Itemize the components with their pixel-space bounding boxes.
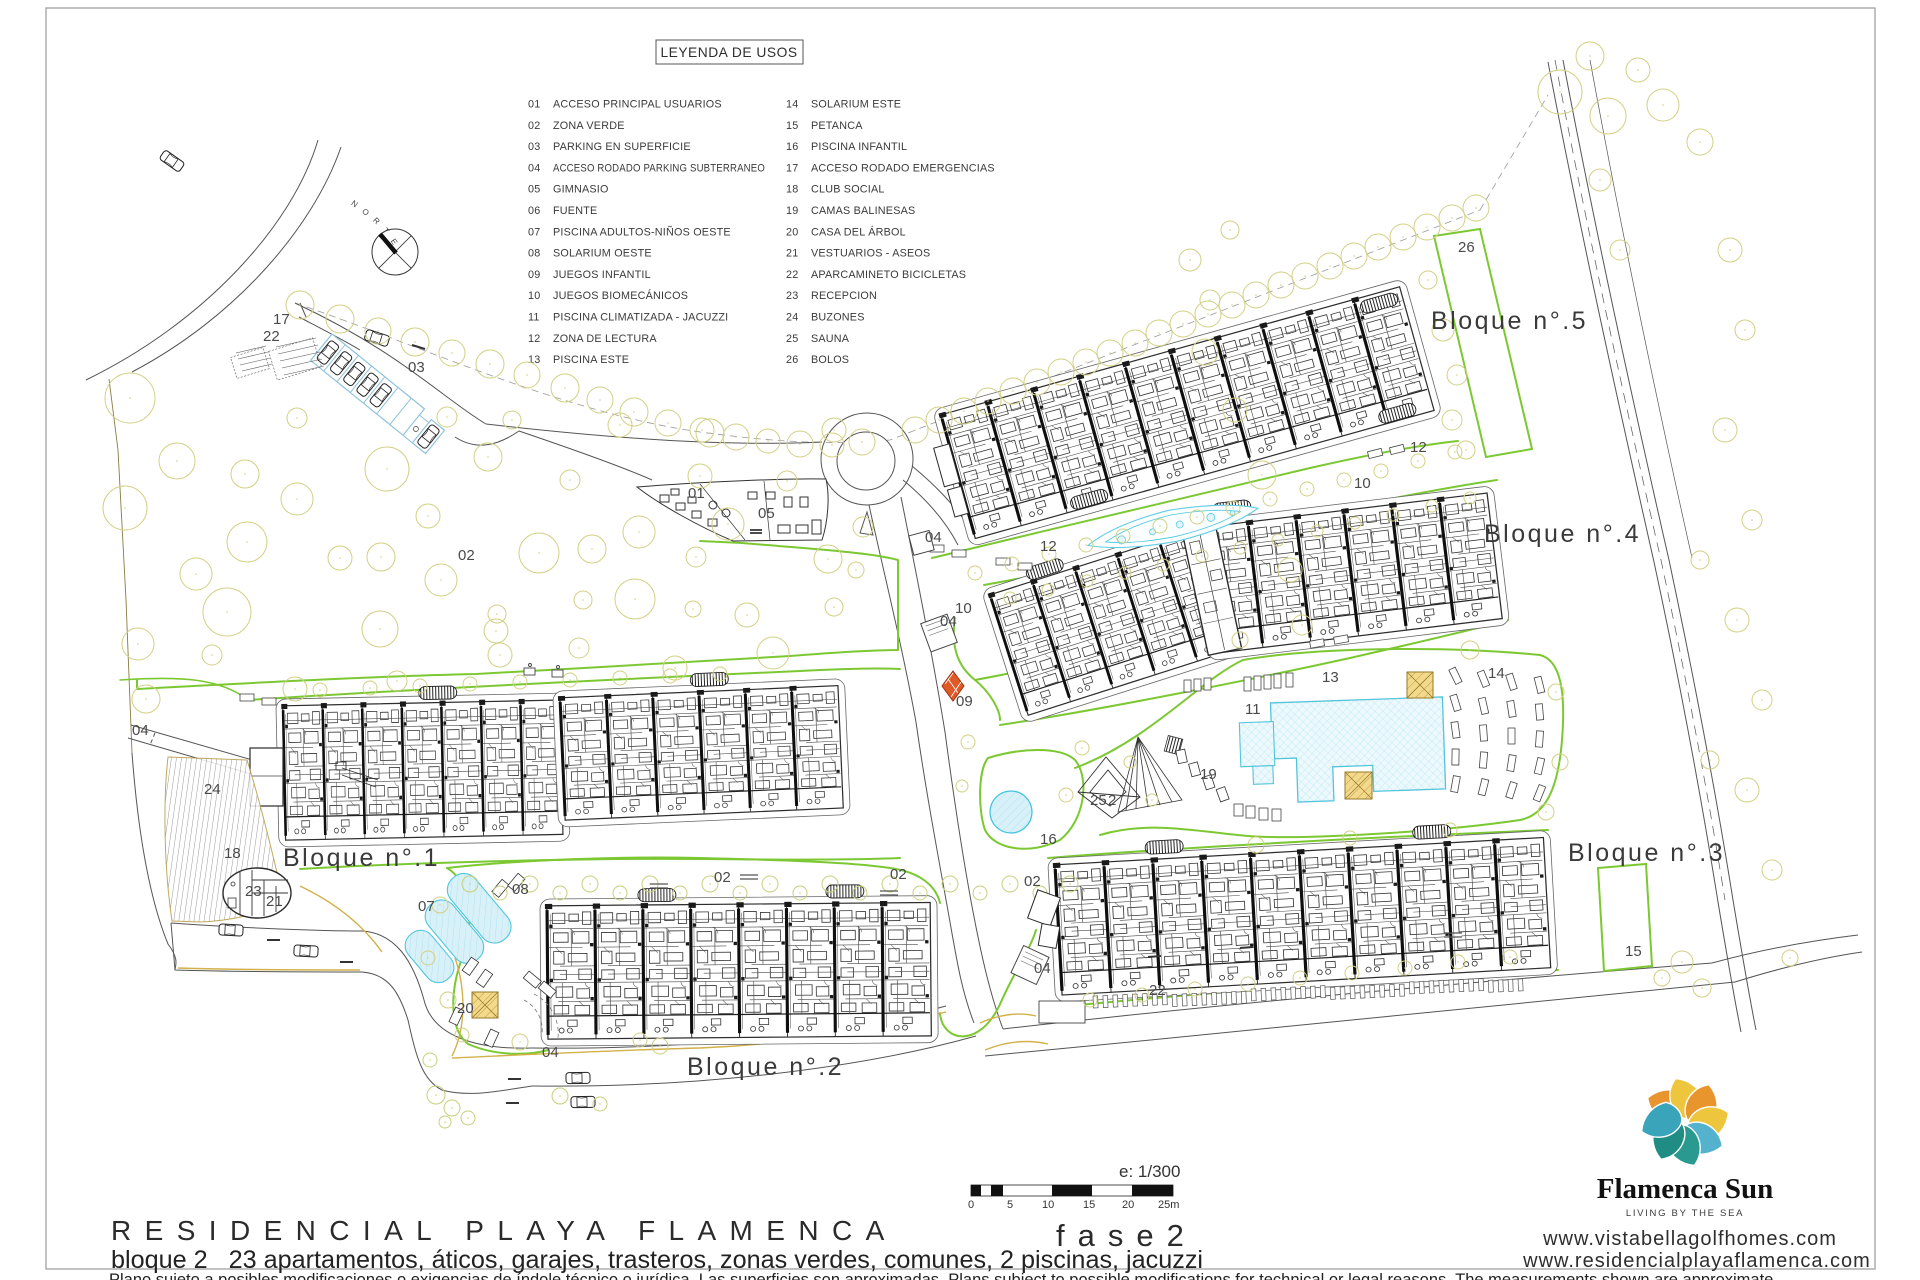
svg-text:GIMNASIO: GIMNASIO [553, 184, 609, 196]
svg-text:PISCINA INFANTIL: PISCINA INFANTIL [811, 141, 907, 153]
svg-text:22: 22 [263, 328, 280, 345]
svg-text:ZONA VERDE: ZONA VERDE [553, 120, 625, 132]
svg-text:CASA DEL ÁRBOL: CASA DEL ÁRBOL [811, 225, 906, 238]
svg-text:04: 04 [542, 1044, 559, 1061]
svg-text:ZONA DE LECTURA: ZONA DE LECTURA [553, 333, 657, 345]
svg-text:24: 24 [204, 781, 221, 798]
svg-text:08: 08 [528, 248, 540, 260]
svg-text:15: 15 [1083, 1199, 1095, 1211]
svg-text:11: 11 [1245, 701, 1261, 718]
svg-text:JUEGOS INFANTIL: JUEGOS INFANTIL [553, 269, 651, 281]
svg-text:02: 02 [1024, 873, 1041, 890]
svg-text:13: 13 [1322, 669, 1339, 686]
svg-text:19: 19 [1200, 766, 1217, 783]
svg-text:5: 5 [1007, 1199, 1013, 1211]
svg-text:Bloque n°.5: Bloque n°.5 [1431, 307, 1588, 335]
svg-text:09: 09 [528, 269, 540, 281]
svg-text:16: 16 [786, 141, 798, 153]
svg-text:14: 14 [786, 99, 798, 111]
svg-text:PISCINA CLIMATIZADA - JACUZZI: PISCINA CLIMATIZADA - JACUZZI [553, 312, 728, 324]
svg-text:26: 26 [1458, 239, 1475, 256]
svg-text:22: 22 [1149, 982, 1166, 999]
svg-text:20: 20 [1122, 1199, 1134, 1211]
svg-text:02: 02 [458, 547, 475, 564]
svg-text:SOLARIUM ESTE: SOLARIUM ESTE [811, 99, 901, 111]
svg-text:www.residencialplayaflamenca.c: www.residencialplayaflamenca.com [1522, 1250, 1871, 1272]
svg-text:0: 0 [968, 1199, 974, 1211]
svg-text:14: 14 [1488, 665, 1505, 682]
svg-text:05: 05 [528, 184, 540, 196]
svg-text:JUEGOS BIOMECÁNICOS: JUEGOS BIOMECÁNICOS [553, 289, 688, 302]
svg-text:Plano sujeto a posibles modifi: Plano sujeto a posibles modificaciones o… [109, 1271, 1773, 1280]
svg-text:22: 22 [786, 269, 798, 281]
svg-text:BUZONES: BUZONES [811, 312, 865, 324]
svg-text:01: 01 [528, 99, 540, 111]
svg-text:16: 16 [1040, 831, 1057, 848]
svg-text:18: 18 [786, 184, 798, 196]
svg-text:2: 2 [1108, 792, 1116, 809]
svg-text:12: 12 [528, 333, 540, 345]
svg-text:21: 21 [786, 248, 798, 260]
svg-text:10: 10 [955, 600, 972, 617]
svg-text:02: 02 [528, 120, 540, 132]
svg-text:Bloque n°.4: Bloque n°.4 [1484, 520, 1641, 548]
svg-text:www.vistabellagolfhomes.com: www.vistabellagolfhomes.com [1542, 1228, 1837, 1250]
svg-text:25m: 25m [1158, 1199, 1179, 1211]
svg-text:04: 04 [528, 162, 540, 174]
svg-text:26: 26 [786, 354, 798, 366]
svg-text:SAUNA: SAUNA [811, 333, 850, 345]
svg-text:10: 10 [1042, 1199, 1054, 1211]
svg-text:25: 25 [1090, 792, 1107, 809]
svg-text:10: 10 [528, 290, 540, 302]
svg-text:PISCINA ESTE: PISCINA ESTE [553, 354, 629, 366]
svg-text:03: 03 [408, 359, 425, 376]
svg-text:CAMAS BALINESAS: CAMAS BALINESAS [811, 205, 915, 217]
svg-text:04: 04 [1034, 960, 1051, 977]
svg-text:07: 07 [528, 226, 540, 238]
svg-text:FUENTE: FUENTE [553, 205, 597, 217]
svg-text:05: 05 [758, 505, 775, 522]
svg-text:02: 02 [890, 866, 907, 883]
svg-text:ACCESO RODADO EMERGENCIAS: ACCESO RODADO EMERGENCIAS [811, 162, 995, 174]
svg-text:04: 04 [925, 529, 942, 546]
svg-text:19: 19 [786, 205, 798, 217]
svg-text:15: 15 [1625, 943, 1642, 960]
svg-text:LIVING BY THE SEA: LIVING BY THE SEA [1626, 1208, 1744, 1219]
svg-text:12: 12 [1410, 439, 1427, 456]
svg-text:02: 02 [714, 869, 731, 886]
svg-text:10: 10 [1354, 475, 1371, 492]
svg-text:23: 23 [786, 290, 798, 302]
svg-text:12: 12 [1040, 538, 1057, 555]
svg-text:15: 15 [786, 120, 798, 132]
svg-text:ACCESO RODADO PARKING SUBTERRA: ACCESO RODADO PARKING SUBTERRANEO [553, 162, 765, 174]
svg-text:e: 1/300: e: 1/300 [1119, 1162, 1180, 1181]
svg-text:VESTUARIOS - ASEOS: VESTUARIOS - ASEOS [811, 248, 930, 260]
svg-text:bloque 2 23 apartamentos, át: bloque 2 23 apartamentos, áticos, garaje… [111, 1246, 1203, 1274]
svg-text:08: 08 [512, 881, 529, 898]
svg-text:Bloque n°.1: Bloque n°.1 [283, 844, 440, 872]
svg-text:SOLARIUM OESTE: SOLARIUM OESTE [553, 248, 652, 260]
svg-text:Flamenca Sun: Flamenca Sun [1597, 1173, 1773, 1205]
svg-text:PISCINA ADULTOS-NIÑOS OESTE: PISCINA ADULTOS-NIÑOS OESTE [553, 225, 731, 238]
svg-text:PARKING EN SUPERFICIE: PARKING EN SUPERFICIE [553, 141, 691, 153]
svg-text:11: 11 [528, 312, 540, 324]
svg-text:BOLOS: BOLOS [811, 354, 849, 366]
svg-text:LEYENDA DE USOS: LEYENDA DE USOS [660, 45, 797, 60]
svg-text:06: 06 [528, 205, 540, 217]
svg-text:Bloque n°.3: Bloque n°.3 [1568, 839, 1725, 867]
svg-text:18: 18 [224, 845, 241, 862]
svg-text:09: 09 [956, 693, 973, 710]
svg-text:04: 04 [132, 722, 149, 739]
svg-text:20: 20 [457, 1000, 474, 1017]
svg-text:21: 21 [266, 893, 283, 910]
svg-text:07: 07 [418, 898, 435, 915]
svg-text:17: 17 [786, 162, 798, 174]
svg-text:CLUB SOCIAL: CLUB SOCIAL [811, 184, 885, 196]
svg-text:ACCESO PRINCIPAL USUARIOS: ACCESO PRINCIPAL USUARIOS [553, 99, 722, 111]
svg-text:RESIDENCIAL PLAYA FLAMENCA: RESIDENCIAL PLAYA FLAMENCA [111, 1215, 898, 1246]
svg-text:Bloque n°.2: Bloque n°.2 [687, 1053, 844, 1081]
svg-text:24: 24 [786, 312, 798, 324]
svg-text:03: 03 [528, 141, 540, 153]
svg-text:20: 20 [786, 226, 798, 238]
svg-text:RECEPCION: RECEPCION [811, 290, 877, 302]
svg-text:17: 17 [273, 311, 290, 328]
svg-text:01: 01 [688, 485, 705, 502]
svg-text:23: 23 [245, 883, 262, 900]
svg-text:25: 25 [786, 333, 798, 345]
svg-text:APARCAMINETO BICICLETAS: APARCAMINETO BICICLETAS [811, 269, 966, 281]
svg-text:PETANCA: PETANCA [811, 120, 863, 132]
